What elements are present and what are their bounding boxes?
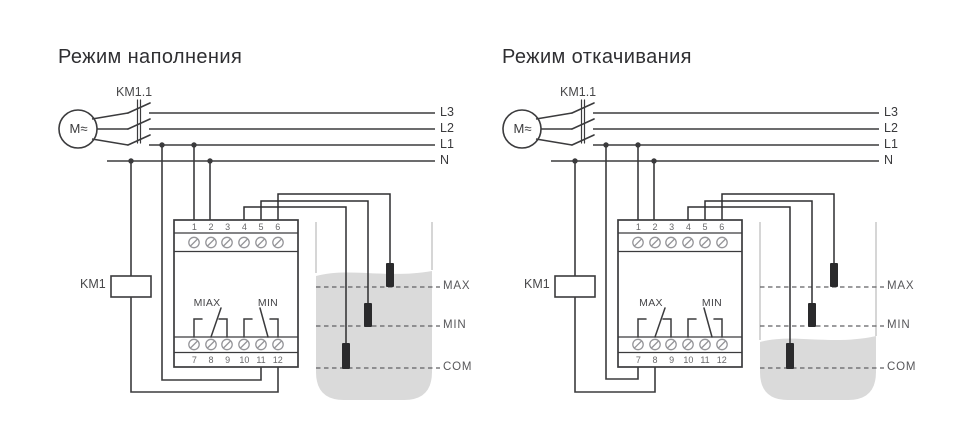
- terminal-number: 8: [647, 355, 664, 366]
- contactor-symbol: [128, 100, 150, 145]
- tank: [760, 222, 876, 400]
- coil-km1: [111, 276, 151, 297]
- terminal-number: 8: [203, 355, 220, 366]
- max-contact-label: MAX: [629, 297, 673, 309]
- terminal-number: 4: [680, 222, 697, 233]
- relay-top-terminal-numbers: 1 2 3 4 5 6: [630, 222, 730, 233]
- terminal-number: 7: [186, 355, 203, 366]
- min-electrode: [364, 303, 372, 327]
- coil-label: KM1: [80, 277, 106, 291]
- tank-level-label-max: MAX: [887, 280, 914, 292]
- terminal-number: 3: [663, 222, 680, 233]
- terminal-number: 3: [219, 222, 236, 233]
- diagram-draining-mode: Режим откачивания M≈ KM1.1 KM1 L3 L2 L1 …: [444, 0, 929, 446]
- power-lines: [107, 113, 435, 161]
- wiring-diagrams-canvas: Режим наполнения M≈ KM1.1 KM1 L3 L2 L1 N…: [0, 0, 970, 446]
- power-lines: [551, 113, 879, 161]
- tank: [316, 222, 432, 400]
- tank-level-label-com: COM: [887, 361, 916, 373]
- line-label-l2: L2: [884, 121, 898, 135]
- com-electrode: [342, 343, 350, 369]
- terminal-number: 2: [647, 222, 664, 233]
- water-full: [316, 271, 432, 400]
- terminal-number: 6: [713, 222, 730, 233]
- tank-level-label-min: MIN: [887, 319, 910, 331]
- max-contact-label: MIAX: [185, 297, 229, 309]
- terminal-number: 1: [630, 222, 647, 233]
- diagram-filling-mode: Режим наполнения M≈ KM1.1 KM1 L3 L2 L1 N…: [0, 0, 485, 446]
- terminal-number: 12: [713, 355, 730, 366]
- min-contact-label: MIN: [690, 297, 734, 309]
- terminal-number: 10: [680, 355, 697, 366]
- diagram-title: Режим откачивания: [502, 46, 692, 69]
- terminal-number: 9: [219, 355, 236, 366]
- relay-top-terminal-numbers: 1 2 3 4 5 6: [186, 222, 286, 233]
- min-contact-label: MIN: [246, 297, 290, 309]
- contactor-label: KM1.1: [560, 85, 596, 99]
- terminal-number: 11: [253, 355, 270, 366]
- max-electrode: [386, 263, 394, 287]
- motor-label: M≈: [60, 121, 97, 136]
- coil-label: KM1: [524, 277, 550, 291]
- terminal-number: 2: [203, 222, 220, 233]
- line-label-l3: L3: [884, 105, 898, 119]
- line-label-n: N: [884, 153, 893, 167]
- coil-km1: [555, 276, 595, 297]
- max-electrode: [830, 263, 838, 287]
- terminal-number: 1: [186, 222, 203, 233]
- min-electrode: [808, 303, 816, 327]
- terminal-number: 4: [236, 222, 253, 233]
- relay-bottom-terminal-numbers: 7 8 9 10 11 12: [186, 355, 286, 366]
- terminal-number: 11: [697, 355, 714, 366]
- com-electrode: [786, 343, 794, 369]
- terminal-number: 9: [663, 355, 680, 366]
- contactor-label: KM1.1: [116, 85, 152, 99]
- terminal-number: 6: [269, 222, 286, 233]
- diagram-title: Режим наполнения: [58, 46, 242, 69]
- line-label-l1: L1: [884, 137, 898, 151]
- terminal-number: 5: [253, 222, 270, 233]
- relay-bottom-terminal-numbers: 7 8 9 10 11 12: [630, 355, 730, 366]
- contactor-symbol: [572, 100, 594, 145]
- terminal-number: 5: [697, 222, 714, 233]
- terminal-number: 12: [269, 355, 286, 366]
- terminal-number: 7: [630, 355, 647, 366]
- motor-label: M≈: [504, 121, 541, 136]
- terminal-number: 10: [236, 355, 253, 366]
